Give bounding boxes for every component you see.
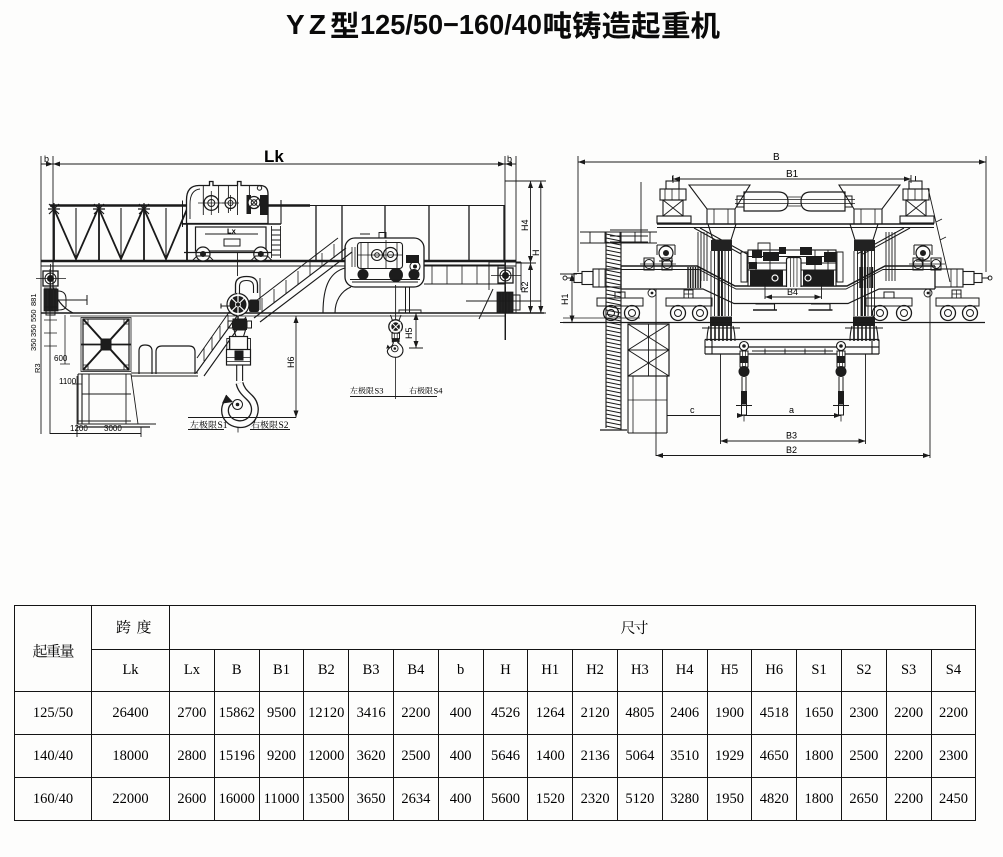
svg-text:S2: S2 [279, 421, 289, 431]
svg-text:1200: 1200 [70, 424, 88, 433]
svg-text:S1: S1 [218, 421, 228, 431]
svg-text:350: 350 [29, 324, 38, 337]
svg-text:550: 550 [29, 309, 38, 322]
svg-text:H: H [531, 250, 541, 257]
svg-text:a: a [789, 405, 794, 415]
svg-text:1100: 1100 [59, 377, 77, 386]
svg-text:R2: R2 [520, 281, 530, 293]
svg-text:B3: B3 [786, 431, 797, 441]
svg-text:H4: H4 [520, 219, 530, 231]
svg-text:Lk: Lk [264, 147, 284, 166]
svg-text:H5: H5 [404, 327, 414, 339]
svg-text:c: c [690, 405, 695, 415]
svg-text:881: 881 [29, 293, 38, 306]
svg-text:YZ: YZ [286, 9, 326, 40]
svg-text:Lx: Lx [227, 227, 237, 236]
svg-text:H6: H6 [286, 356, 296, 368]
svg-text:600: 600 [54, 354, 68, 363]
svg-text:350: 350 [29, 338, 38, 351]
svg-text:B1: B1 [786, 169, 799, 180]
svg-text:H1: H1 [560, 293, 570, 305]
svg-text:b: b [44, 154, 49, 164]
svg-text:R3: R3 [33, 363, 42, 373]
svg-text:b: b [507, 154, 512, 164]
svg-text:B: B [773, 152, 780, 163]
svg-text:S3: S3 [375, 386, 384, 396]
svg-text:3000: 3000 [104, 424, 122, 433]
svg-text:B4: B4 [787, 287, 798, 297]
svg-text:B2: B2 [786, 445, 797, 455]
svg-text:S4: S4 [434, 386, 444, 396]
svg-text:125/50−160/40: 125/50−160/40 [360, 9, 542, 40]
